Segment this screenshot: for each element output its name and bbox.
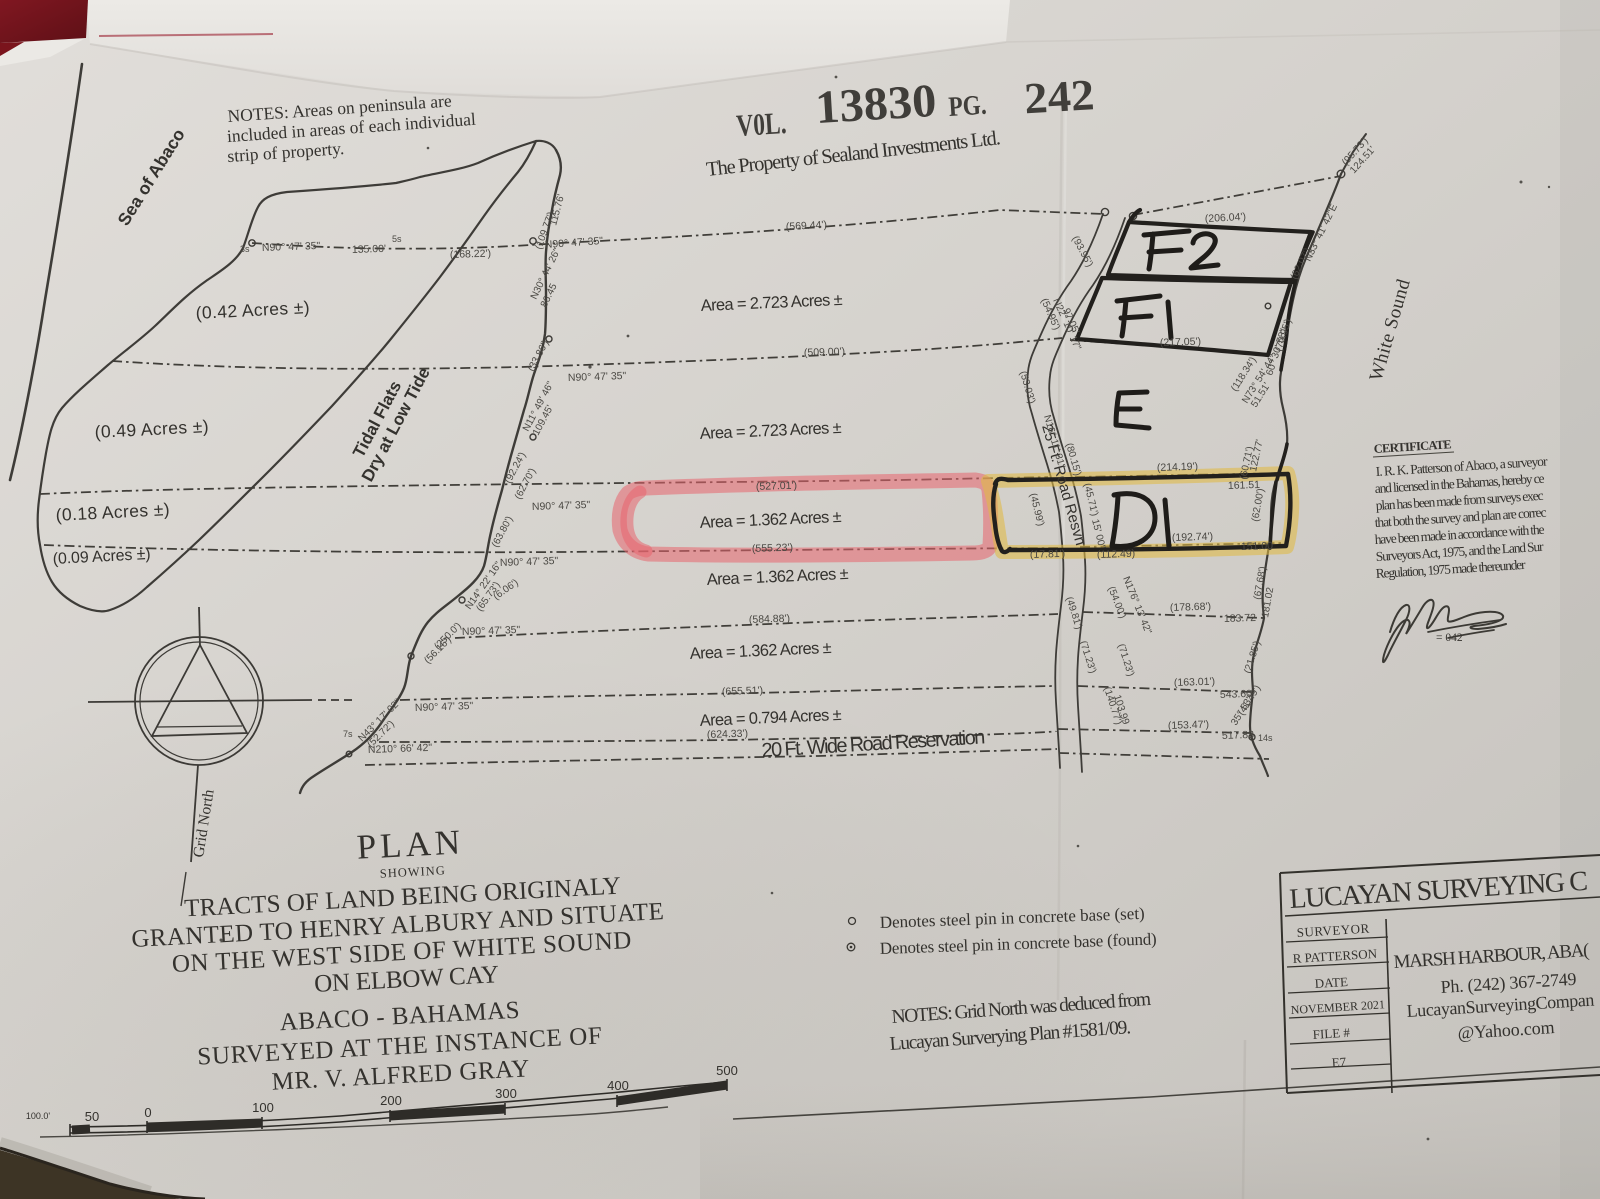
svg-text:183.72: 183.72 <box>1224 612 1257 625</box>
svg-text:(655.51'): (655.51') <box>722 685 764 698</box>
svg-text:(584.88'): (584.88') <box>749 613 791 626</box>
svg-text:N90° 47' 35": N90° 47' 35" <box>462 624 521 638</box>
svg-text:(112.49): (112.49) <box>1097 548 1136 561</box>
svg-text:14s: 14s <box>1258 733 1273 743</box>
svg-text:500: 500 <box>716 1063 738 1078</box>
svg-text:FILE #: FILE # <box>1312 1025 1351 1042</box>
svg-text:100: 100 <box>252 1100 274 1115</box>
svg-text:0: 0 <box>144 1105 151 1120</box>
svg-text:135.00': 135.00' <box>352 243 387 256</box>
svg-text:13830: 13830 <box>814 75 938 134</box>
svg-text:(555.23'): (555.23') <box>752 542 794 555</box>
svg-text:300: 300 <box>495 1086 517 1101</box>
svg-text:N90° 47' 35": N90° 47' 35" <box>262 240 321 254</box>
svg-text:V0L.: V0L. <box>735 105 787 143</box>
svg-text:(527.01'): (527.01') <box>756 480 798 493</box>
svg-text:100.0': 100.0' <box>26 1111 51 1121</box>
svg-text:50: 50 <box>85 1109 99 1124</box>
svg-text:200: 200 <box>380 1093 402 1108</box>
svg-text:(153.47'): (153.47') <box>1168 719 1210 732</box>
svg-text:(509.00'): (509.00') <box>804 346 846 359</box>
svg-text:DATE: DATE <box>1314 974 1348 991</box>
svg-text:517.83: 517.83 <box>1222 729 1255 742</box>
svg-text:400: 400 <box>607 1078 629 1093</box>
svg-text:N90° 47' 35": N90° 47' 35" <box>568 370 627 384</box>
svg-text:151.00: 151.00 <box>1241 540 1274 553</box>
svg-text:PLAN: PLAN <box>356 822 465 867</box>
svg-text:5s: 5s <box>392 234 402 244</box>
svg-text:(569.44'): (569.44') <box>786 219 828 233</box>
svg-text:(178.68'): (178.68') <box>1170 601 1212 614</box>
svg-text:N90° 47' 35": N90° 47' 35" <box>532 499 591 513</box>
svg-text:(624.33'): (624.33') <box>707 728 749 741</box>
svg-text:7s: 7s <box>343 729 353 739</box>
svg-text:N90° 47' 35": N90° 47' 35" <box>415 700 474 714</box>
svg-text:(17.81'): (17.81') <box>1030 548 1066 561</box>
svg-text:N90° 47' 35": N90° 47' 35" <box>500 555 559 569</box>
svg-text:242: 242 <box>1023 70 1096 123</box>
svg-text:PG.: PG. <box>948 90 988 123</box>
svg-text:(163.01'): (163.01') <box>1174 676 1216 689</box>
svg-text:(206.04'): (206.04') <box>1205 211 1247 225</box>
svg-text:(168.22'): (168.22') <box>450 248 492 261</box>
svg-text:= 042: = 042 <box>1436 632 1463 644</box>
svg-text:3s: 3s <box>240 244 250 254</box>
svg-text:(214.19'): (214.19') <box>1157 461 1199 474</box>
svg-text:(217.05'): (217.05') <box>1160 336 1202 349</box>
svg-text:(192.74'): (192.74') <box>1172 531 1214 544</box>
svg-text:E7: E7 <box>1331 1054 1347 1070</box>
